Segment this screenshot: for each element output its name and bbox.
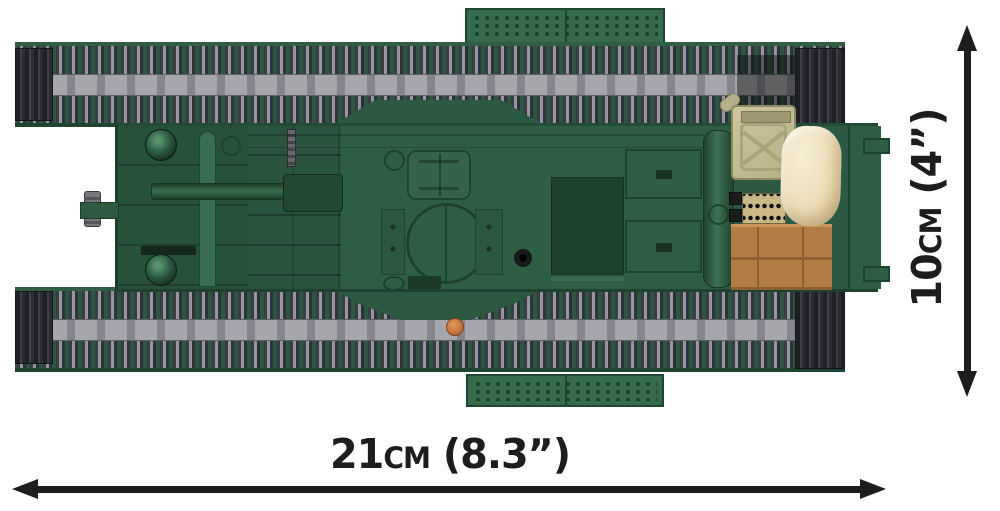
- front-vent-slot: [141, 246, 196, 255]
- width-arrow-line: [34, 486, 862, 493]
- arrow-right-icon: [860, 479, 886, 499]
- track-end-cap: [795, 48, 845, 125]
- top-stud-plate: [465, 8, 665, 46]
- deck-seam: [248, 147, 703, 148]
- engine-hatch-top: [625, 149, 702, 199]
- track-end-cap: [15, 291, 53, 364]
- pillar-stud: [708, 204, 729, 225]
- ammo-block: [729, 192, 742, 205]
- headlight-dome-bottom: [145, 254, 177, 286]
- engine-hatch-bottom: [625, 220, 702, 273]
- track-end-cap: [15, 48, 53, 121]
- headlight-dome-top: [145, 129, 177, 161]
- sandbag: [780, 125, 843, 227]
- periscope-port: [514, 249, 532, 267]
- tow-lug-bottom: [863, 266, 890, 282]
- side-rail-right: [475, 209, 503, 275]
- product-dimension-image: 21cm (8.3”) 10cm (4”): [0, 0, 1000, 511]
- side-rail-left: [381, 209, 405, 275]
- hull-recess: [408, 276, 441, 289]
- deck-seam: [248, 134, 703, 136]
- bottom-stud-plate: [466, 374, 664, 407]
- height-label: 10cm (4”): [904, 53, 950, 363]
- gun-mantlet: [283, 174, 343, 212]
- engine-deck-panel: [551, 177, 624, 275]
- track-end-cap: [795, 290, 845, 369]
- wooden-crate: [731, 224, 832, 290]
- arrow-up-icon: [957, 25, 977, 51]
- hull-ring-detail: [221, 136, 241, 156]
- gun-barrel: [151, 183, 291, 200]
- height-arrow-line: [964, 49, 971, 373]
- crew-hatch: [407, 150, 471, 200]
- tow-lug-top: [863, 138, 890, 154]
- turret-ring-seam: [445, 205, 447, 282]
- width-label: 21cm (8.3”): [256, 430, 644, 476]
- muzzle-mount: [80, 202, 119, 219]
- hull-port: [383, 276, 405, 291]
- brand-stud: [384, 150, 405, 171]
- arrow-down-icon: [957, 371, 977, 397]
- ammo-block: [729, 209, 742, 222]
- jerry-can-handle: [741, 111, 791, 123]
- arrow-left-icon: [12, 479, 38, 499]
- hull-center-strip: [199, 131, 216, 287]
- orange-stud: [446, 318, 464, 336]
- ammo-belt: [742, 193, 786, 224]
- deck-step: [551, 277, 624, 281]
